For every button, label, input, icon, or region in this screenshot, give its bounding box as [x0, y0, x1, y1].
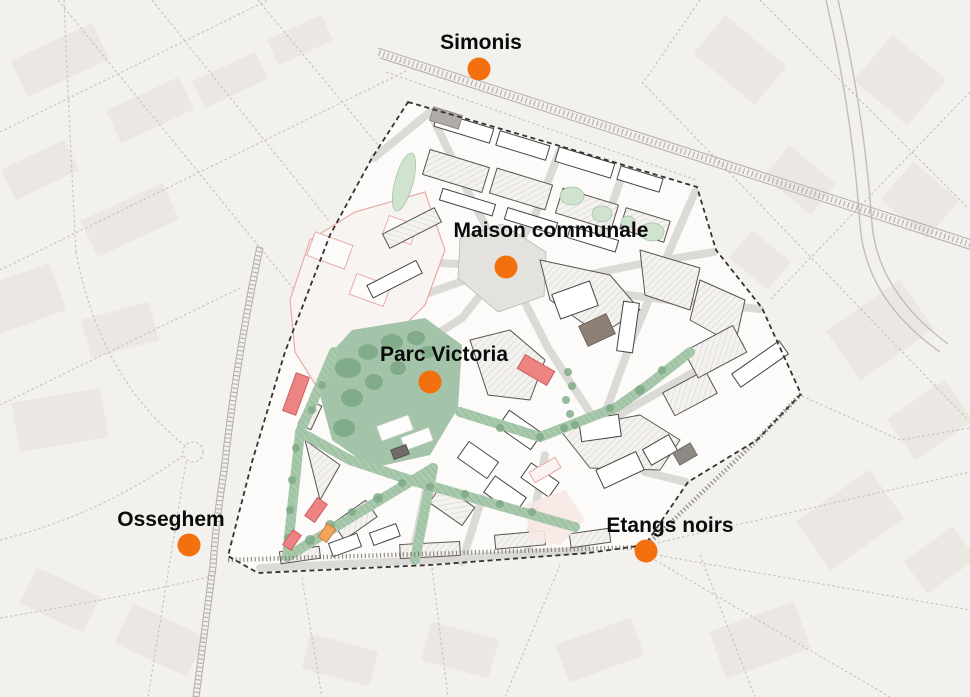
neighborhood-map: Simonis Maison communale Parc Victoria O…	[0, 0, 970, 697]
marker-label-maison-communale: Maison communale	[454, 219, 649, 242]
marker-label-osseghem: Osseghem	[117, 508, 224, 531]
marker-dot-simonis[interactable]	[468, 58, 491, 81]
map-image: Simonis Maison communale Parc Victoria O…	[0, 0, 970, 697]
marker-label-etangs-noirs: Etangs noirs	[606, 514, 733, 537]
marker-dot-parc-victoria[interactable]	[419, 371, 442, 394]
marker-label-parc-victoria: Parc Victoria	[380, 343, 508, 366]
marker-label-simonis: Simonis	[440, 31, 522, 54]
marker-dot-maison-communale[interactable]	[495, 256, 518, 279]
marker-dot-etangs-noirs[interactable]	[635, 540, 658, 563]
marker-dot-osseghem[interactable]	[178, 534, 201, 557]
